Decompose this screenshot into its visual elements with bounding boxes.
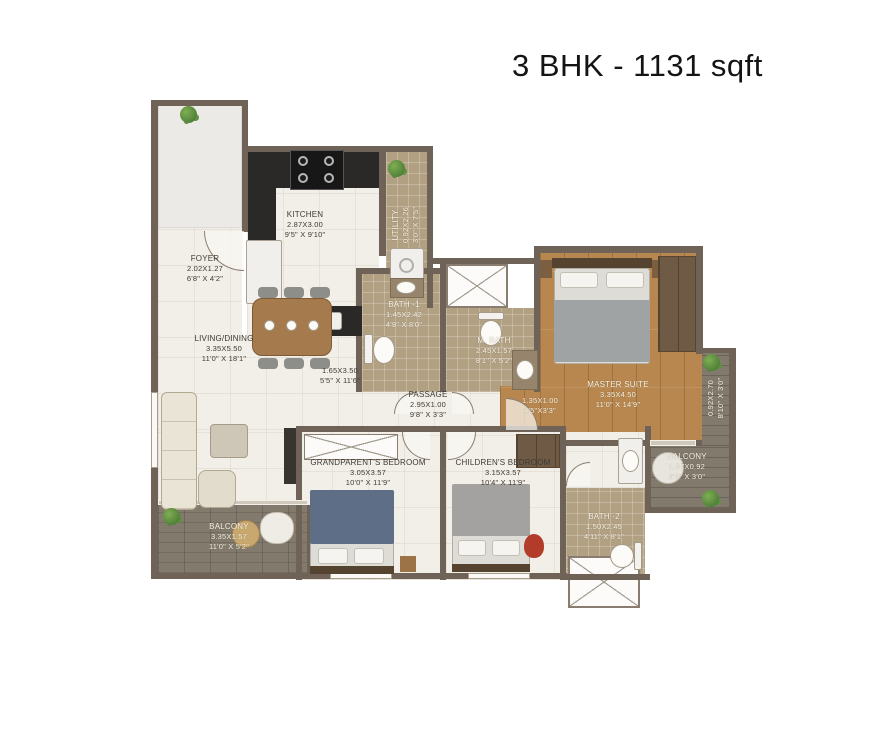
childrens-bed-blanket (452, 484, 530, 536)
burner-icon (324, 156, 334, 166)
burner-icon (298, 156, 308, 166)
side-ledge-dims-label: 0.92X2.70 8'10" X 3'0" (706, 353, 726, 443)
toilet-icon (610, 544, 634, 568)
plant-icon (388, 160, 405, 177)
dining-plate (286, 320, 297, 331)
burner-icon (298, 173, 308, 183)
wall-corridor-top (151, 100, 248, 106)
wall-master-right (696, 246, 703, 354)
entry-corridor-floor (158, 100, 242, 228)
utility-label: UTILITY 0.92X2.26 3'0" X 7'5" (391, 183, 421, 267)
stove-icon (290, 150, 344, 190)
pillow (560, 272, 598, 288)
balcony-left-label: BALCONY 3.35X1.57 11'0" X 5'2" (179, 522, 279, 552)
foyer-label: FOYER 2.02X1.27 6'8" X 4'2" (163, 254, 247, 284)
dining-chair (284, 287, 304, 298)
beanbag (524, 534, 544, 558)
toilet-icon (373, 336, 395, 364)
tv-unit (284, 428, 296, 484)
wall-left-outer (151, 100, 158, 579)
balcony-right-sliding-door (650, 440, 696, 446)
pillow (492, 540, 520, 556)
plant-icon (180, 106, 197, 123)
wall-master-top (534, 246, 702, 253)
dining-plate (308, 320, 319, 331)
wall-right-outer (729, 348, 736, 513)
master-entry-dims-label: 1.35X1.00 4'5"X3'3" (504, 396, 576, 416)
coffee-table (210, 424, 248, 458)
wall-childrens-bath2 (560, 426, 566, 580)
pillow (354, 548, 384, 564)
burner-icon (324, 173, 334, 183)
bath1-label: BATH -1 1.45X2.42 4'9" X 8'0" (362, 300, 446, 330)
armchair (198, 470, 236, 508)
master-bed-headboard (552, 258, 652, 268)
nightstand (540, 260, 552, 278)
wall-mbath-top (433, 258, 540, 264)
washbasin-icon (396, 281, 416, 294)
dining-plate (264, 320, 275, 331)
dining-chair (310, 287, 330, 298)
pillow (318, 548, 348, 564)
dining-chair (258, 287, 278, 298)
plant-icon (702, 490, 719, 507)
wall-balcony-right-bottom (650, 508, 736, 513)
childrens-bedroom-label: CHILDREN'S BEDROOM 3.15X3.57 10'4" X 11'… (443, 458, 563, 488)
bath2-label: BATH -2 1.50X2.45 4'11" X 8'1" (566, 512, 642, 542)
passage-label: PASSAGE 2.95X1.00 9'8" X 3'3" (386, 390, 470, 420)
wall-bath2-bottom (560, 574, 650, 580)
toilet-tank (364, 334, 373, 364)
kitchen-label: KITCHEN 2.87X3.00 9'5" X 9'10" (255, 210, 355, 240)
grandparents-wardrobe (304, 434, 398, 460)
nightstand (400, 556, 416, 572)
wall-grandparents-childrens (440, 432, 446, 580)
living-dining-label: LIVING/DINING 3.35X5.50 11'0" X 18'1" (164, 334, 284, 364)
master-bed-blanket (554, 300, 650, 362)
toilet-tank (634, 542, 642, 570)
floor-plan: KITCHEN 2.87X3.00 9'5" X 9'10" UTILITY 0… (0, 0, 881, 735)
grandparents-bedroom-label: GRANDPARENT'S BEDROOM 3.05X3.57 10'0" X … (300, 458, 436, 488)
toilet-tank (478, 312, 504, 320)
sofa (161, 392, 197, 510)
window-childrens-bottom (468, 573, 530, 579)
pillow (458, 540, 486, 556)
grandparents-bed-blanket (310, 490, 394, 544)
balcony-right-label: BALCONY 1.97X0.92 6'6" X 3'0" (649, 452, 725, 482)
floor-plan-page: 3 BHK - 1131 sqft (0, 0, 881, 735)
shower-shaft (446, 264, 508, 308)
dining-dims-label: 1.65X3.50 5'5" X 11'6" (290, 366, 390, 386)
window-living-left (151, 392, 158, 468)
pillow (606, 272, 644, 288)
wall-utility-right (427, 146, 433, 308)
wall-kitchen-utility (379, 152, 386, 256)
washbasin-icon (622, 450, 639, 472)
childrens-bed-headboard (452, 564, 530, 572)
plant-icon (163, 508, 180, 525)
master-wardrobe (658, 256, 696, 352)
mbath-label: M. BATH 2.45X1.57 8'1" X 5'2" (450, 336, 538, 366)
grandparents-bed-headboard (310, 566, 394, 574)
